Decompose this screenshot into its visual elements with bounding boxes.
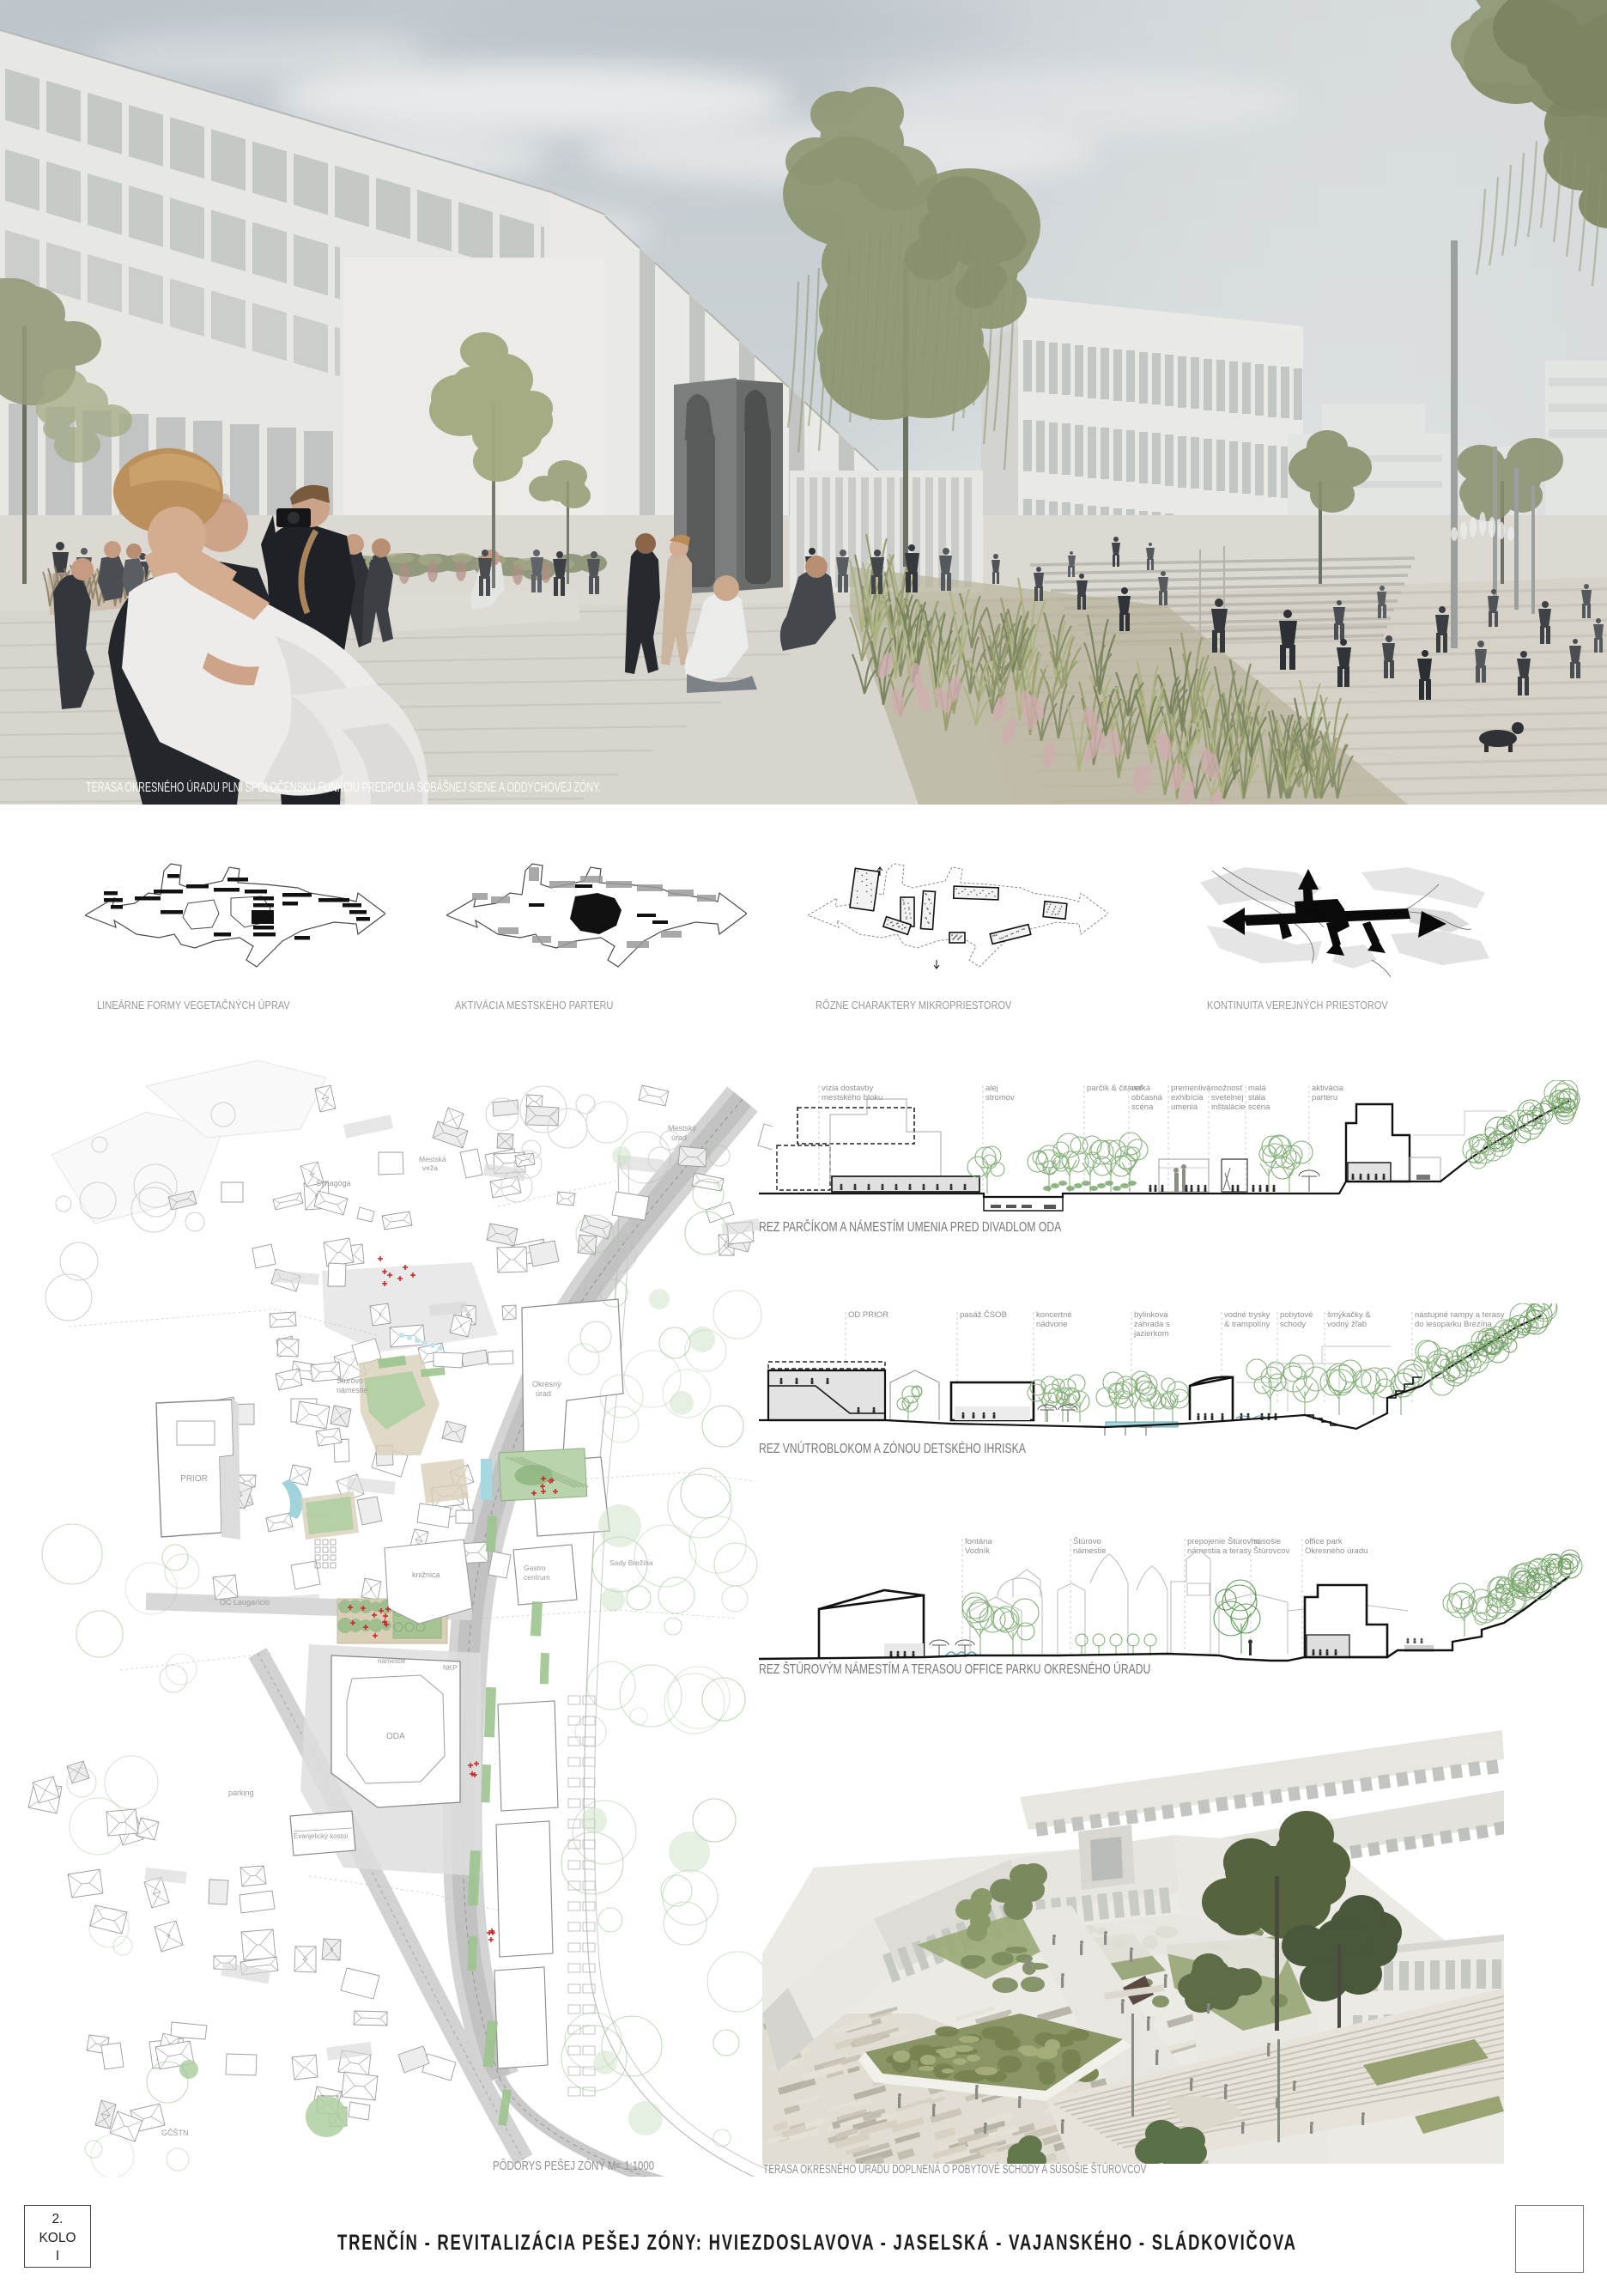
svg-text:nástupné rampy a terasydo leso: nástupné rampy a terasydo lesoparku Brez… xyxy=(1415,1310,1505,1329)
svg-text:premenliváexhibíciaumenia: premenliváexhibíciaumenia xyxy=(1171,1084,1211,1112)
svg-text:Gastro: Gastro xyxy=(524,1564,546,1572)
svg-text:bylinkovázáhrada sjazierkom: bylinkovázáhrada sjazierkom xyxy=(1133,1310,1170,1339)
svg-text:alejstromov: alejstromov xyxy=(985,1084,1015,1102)
svg-text:možnosťsvetelnejinštalácie: možnosťsvetelnejinštalácie xyxy=(1211,1084,1246,1112)
svg-text:veža: veža xyxy=(422,1163,438,1172)
svg-text:vodné trysky& trampolíny: vodné trysky& trampolíny xyxy=(1224,1310,1270,1329)
svg-text:knižnica: knižnica xyxy=(412,1570,440,1579)
svg-text:koncertnénádvorie: koncertnénádvorie xyxy=(1036,1310,1072,1329)
svg-text:Štúrovo: Štúrovo xyxy=(337,1376,363,1385)
svg-text:Štúrovonámestie: Štúrovonámestie xyxy=(1073,1537,1107,1556)
svg-text:Okresný: Okresný xyxy=(532,1380,561,1388)
svg-text:Evanjelický kostol: Evanjelický kostol xyxy=(294,1832,348,1840)
svg-text:šmýkačky &vodný žľab: šmýkačky &vodný žľab xyxy=(1327,1310,1371,1329)
svg-text:pobytovéschody: pobytovéschody xyxy=(1280,1310,1313,1329)
svg-text:Mestská: Mestská xyxy=(419,1155,446,1163)
svg-text:ODA: ODA xyxy=(386,1732,405,1741)
svg-text:TERASA OKRESNÉHO ÚRADU PLNÍ SP: TERASA OKRESNÉHO ÚRADU PLNÍ SPOLOČENSKÚ … xyxy=(86,779,601,795)
svg-text:prepojenie Štúrovhonámestia a: prepojenie Štúrovhonámestia a terasy xyxy=(1187,1537,1260,1556)
svg-text:parking: parking xyxy=(228,1789,254,1797)
svg-text:námestie: námestie xyxy=(378,1657,406,1665)
svg-text:fontánaVodník: fontánaVodník xyxy=(965,1537,992,1556)
svg-text:úrad: úrad xyxy=(671,1133,687,1142)
svg-text:námestie: námestie xyxy=(337,1386,368,1394)
svg-text:Mestský: Mestský xyxy=(668,1124,697,1133)
svg-text:velkáobčasnáscéna: velkáobčasnáscéna xyxy=(1131,1084,1163,1112)
svg-text:úrad: úrad xyxy=(536,1389,551,1398)
svg-text:súsošieŠtúrovcov: súsošieŠtúrovcov xyxy=(1253,1537,1289,1556)
svg-text:centrum: centrum xyxy=(524,1573,550,1582)
svg-text:vízia dostavbymestského bloku: vízia dostavbymestského bloku xyxy=(822,1084,882,1102)
svg-text:OD PRIOR: OD PRIOR xyxy=(848,1310,888,1320)
svg-text:pasáž ČSOB: pasáž ČSOB xyxy=(960,1310,1007,1320)
svg-text:OC Laugarício: OC Laugarício xyxy=(220,1598,270,1607)
svg-text:office parkOkresného úradu: office parkOkresného úradu xyxy=(1305,1537,1367,1556)
svg-text:NKP: NKP xyxy=(443,1664,457,1672)
svg-text:Sady Brežina: Sady Brežina xyxy=(609,1558,653,1567)
svg-text:GČŠTN: GČŠTN xyxy=(161,2129,189,2137)
svg-text:Synagóga: Synagóga xyxy=(316,1179,351,1187)
svg-text:aktiváciaparteru: aktiváciaparteru xyxy=(1312,1084,1344,1102)
svg-text:PRIOR: PRIOR xyxy=(180,1474,208,1484)
svg-text:malástálascéna: malástálascéna xyxy=(1248,1084,1270,1112)
